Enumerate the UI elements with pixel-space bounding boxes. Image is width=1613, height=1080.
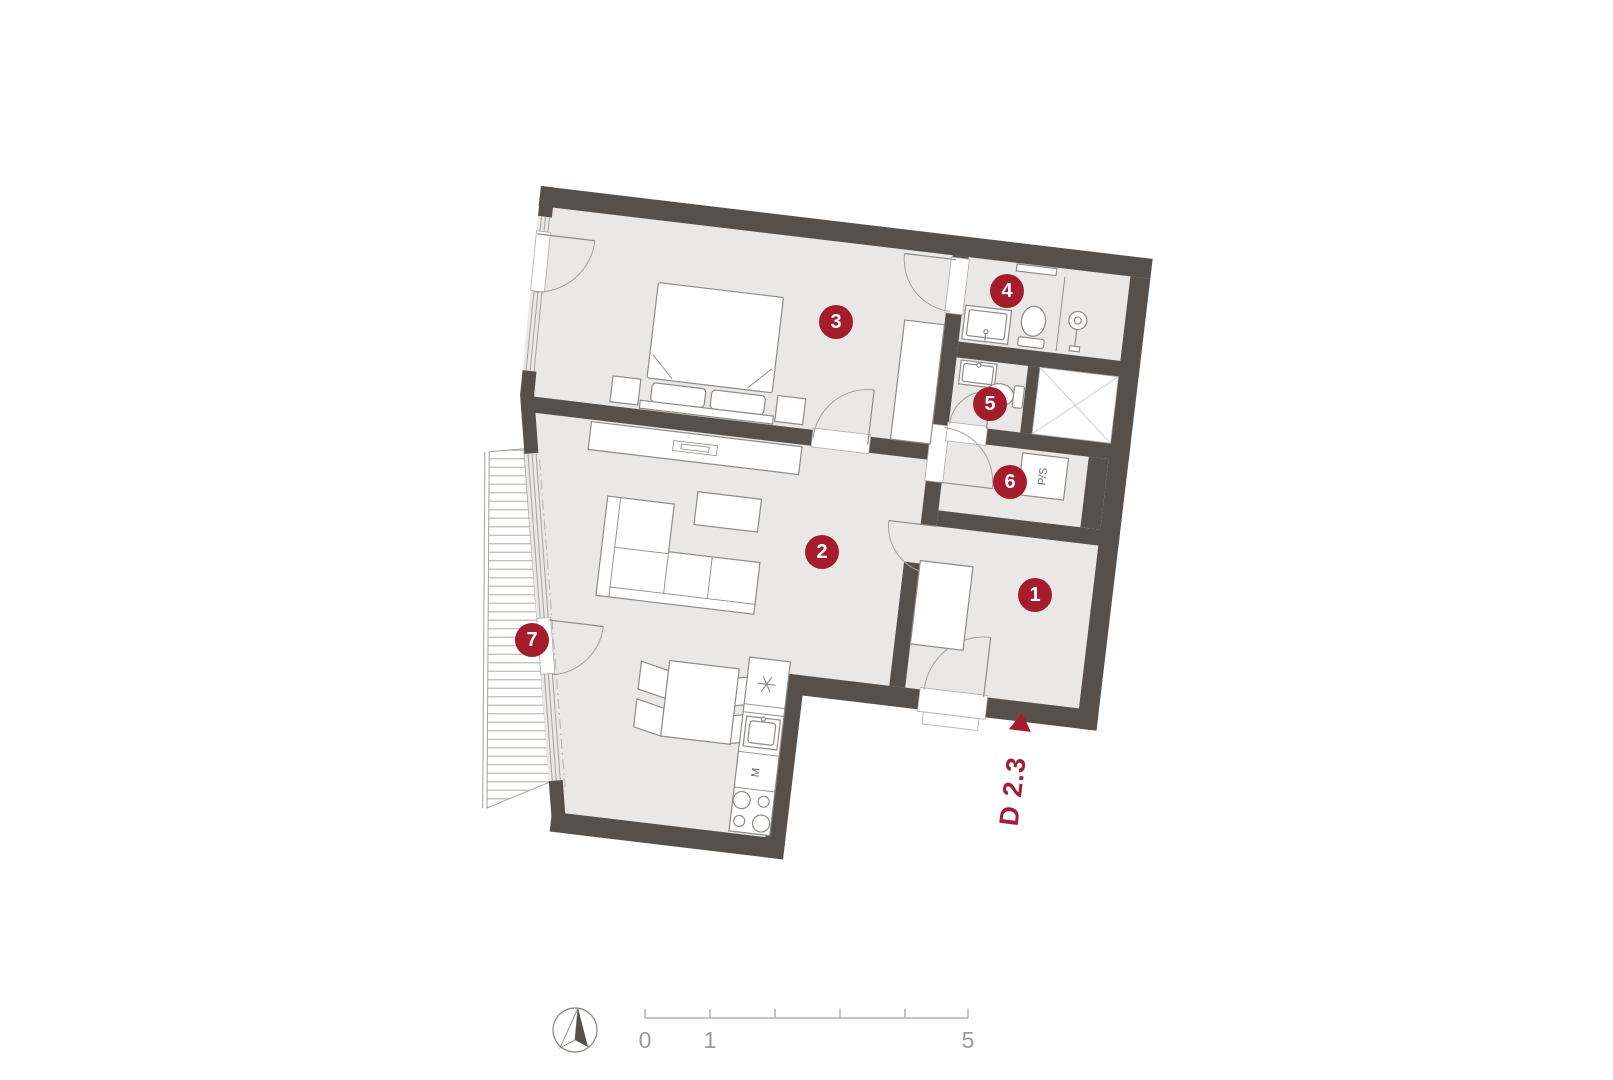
north-arrow <box>553 1008 597 1052</box>
floor-plan-svg: P/S M D 2.3 1 2 3 4 5 6 <box>0 0 1613 1080</box>
room-badge-7: 7 <box>515 623 549 657</box>
kitchen-appliance-label: M <box>750 767 763 778</box>
svg-text:4: 4 <box>1001 280 1013 302</box>
room-badge-2: 2 <box>805 535 839 569</box>
washer-dryer-label: P/S <box>1036 467 1050 486</box>
scale-bar: 0 1 5 <box>639 1009 975 1053</box>
scale-label-5: 5 <box>962 1027 975 1053</box>
unit-label: D 2.3 <box>994 755 1032 828</box>
kitchen-sink <box>743 715 780 750</box>
nightstand-left <box>610 376 641 405</box>
nightstand-right <box>775 396 806 425</box>
svg-text:7: 7 <box>526 629 537 651</box>
floor-plan-page: P/S M D 2.3 1 2 3 4 5 6 <box>0 0 1613 1080</box>
scale-label-0: 0 <box>639 1027 652 1053</box>
apartment-floor <box>465 186 1152 894</box>
coffee-table <box>694 492 761 532</box>
sink <box>962 305 1012 344</box>
room-badge-5: 5 <box>973 387 1007 421</box>
dining-table <box>661 661 740 745</box>
svg-text:5: 5 <box>984 393 995 415</box>
room-badge-1: 1 <box>1018 578 1052 612</box>
apartment-plan: P/S M D 2.3 <box>441 183 1152 894</box>
duct-shaft <box>1032 367 1118 443</box>
small-sink <box>959 360 998 388</box>
room-badge-4: 4 <box>990 274 1024 308</box>
svg-text:2: 2 <box>816 541 827 563</box>
svg-text:6: 6 <box>1004 471 1015 493</box>
room-badge-6: 6 <box>993 465 1027 499</box>
svg-text:1: 1 <box>1029 584 1040 606</box>
svg-text:3: 3 <box>830 311 841 333</box>
hall-wardrobe <box>910 561 973 651</box>
scale-label-1: 1 <box>704 1027 717 1053</box>
room-badge-3: 3 <box>819 305 853 339</box>
